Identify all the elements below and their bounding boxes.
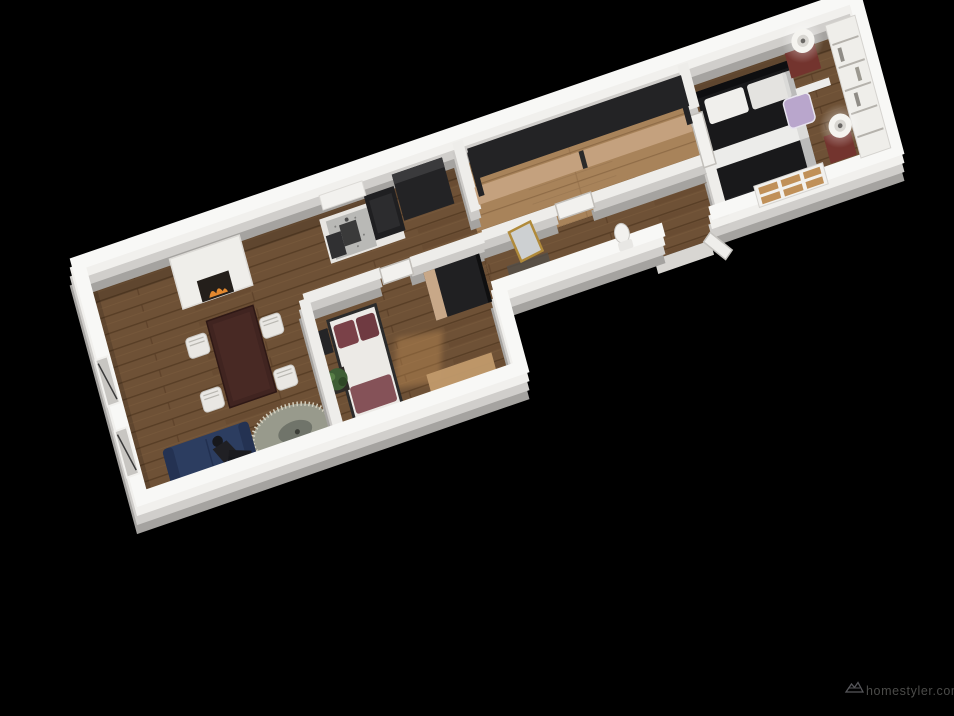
floorplan-3d-viewport[interactable]: homestyler.com <box>0 0 954 716</box>
watermark-text[interactable]: homestyler.com <box>866 684 954 698</box>
floorplan-stage: homestyler.com <box>0 0 954 716</box>
